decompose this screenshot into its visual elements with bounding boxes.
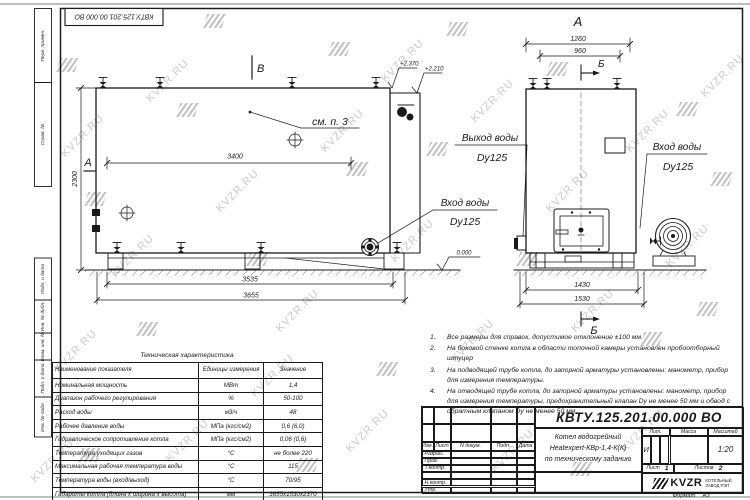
tb-role-prov: Пров.: [422, 458, 451, 465]
section-marker-b: В: [257, 63, 264, 75]
dim-1430: 1430: [574, 282, 590, 289]
sheets-label: Листов: [695, 465, 714, 471]
see-note-label: см. п. 3: [312, 116, 348, 128]
tb-sheets-cell: Листов 2: [674, 464, 744, 473]
valve-icon: [288, 78, 296, 89]
tech-row: Температура воды (вход/выход)°С70/95: [53, 474, 323, 488]
note-number: 2.: [430, 344, 447, 364]
inlet-label-line1: Вход воды: [653, 142, 702, 153]
tech-cell-name: Максимальная рабочая температура воды: [53, 460, 199, 474]
outlet-label-line1: Выход воды: [462, 133, 519, 144]
product-name-line2: Heatexpert-КВр-1,4-К(К): [550, 444, 627, 455]
tb-scale-label: Масштаб: [708, 428, 744, 436]
tech-cell-name: Температура уходящих газов: [53, 446, 199, 460]
product-name-line1: Котел водогрейный: [555, 433, 622, 444]
margin-label: Инв. № подл.: [40, 402, 46, 432]
title-block: Изм. Лист N докум. Подп. Дата Разраб. Пр…: [421, 406, 743, 493]
inlet-label-line1: Вход воды: [441, 198, 490, 209]
boiler-body-side: [96, 88, 390, 253]
water-inlet-flange: [362, 239, 379, 256]
top-stamp: КВТУ.125.201.00.000 ВО: [65, 9, 163, 26]
tech-cell-units: °С: [199, 460, 264, 474]
sheet-label: Лист: [646, 465, 659, 471]
margin-label: Подп. и дата: [40, 363, 46, 393]
tech-cell-value: не более 220: [264, 446, 323, 460]
sheets-value: 2: [719, 465, 723, 472]
tech-cell-value: 0,06 (0,6): [264, 433, 323, 447]
tb-col-docnum: N докум.: [451, 442, 491, 451]
tb-role-empty: [422, 472, 451, 479]
end-view: А 1260 960 Б: [455, 14, 707, 337]
tech-cell-units: МПа (кгс/см2): [199, 419, 264, 433]
margin-label: Справ. №: [40, 124, 46, 146]
elevation-2210: +2.210: [425, 67, 444, 73]
tech-header-row: Наименование показателя Единицы измерени…: [53, 363, 323, 379]
format-value: А3: [702, 493, 709, 499]
tech-cell-name: Рабочее давление воды: [53, 419, 199, 433]
tb-col-podp: Подп.: [491, 442, 517, 451]
note-text: На подводящей трубе котла, до запорной а…: [447, 366, 738, 386]
section-marker-a: А: [83, 157, 91, 169]
tech-row: Габариты котла (длина х ширина х высота)…: [53, 487, 323, 500]
tech-cell-units: °С: [199, 446, 264, 460]
dim-2300: 2300: [72, 171, 79, 188]
tb-scale-value: 1:20: [708, 436, 744, 464]
tech-cell-name: Габариты котла (длина х ширина х высота): [53, 487, 199, 500]
note-number: 1.: [430, 333, 447, 343]
dim-3655: 3655: [243, 293, 259, 300]
margin-label: Перв. примен.: [40, 30, 46, 62]
format-note: Формат А3: [640, 493, 742, 500]
dim-1260: 1260: [570, 36, 586, 43]
tech-cell-value: 48: [264, 406, 323, 420]
outlet-label-line2: Dy125: [477, 152, 508, 164]
tb-col-data: Дата: [517, 442, 535, 451]
tech-row: Рабочее давление водыМПа (кгс/см2)0,6 (6…: [53, 419, 323, 433]
tech-cell-name: Расход воды: [53, 406, 199, 420]
valve-icon: [177, 243, 185, 254]
margin-column: Перв. примен. Справ. № Подп. и дата Инв.…: [35, 9, 52, 438]
valve-icon: [393, 243, 401, 254]
tech-cell-name: Номинальная мощность: [53, 379, 199, 393]
tech-header-units: Единицы измерения: [199, 363, 264, 379]
product-name-line3: по техническому заданию: [545, 455, 632, 466]
inlet-label-line2: Dy125: [450, 216, 481, 228]
note-item: 1. Все размеры для справок, допустимое о…: [430, 333, 738, 343]
company-name-line2: ЗАВОД РЭП: [705, 483, 729, 488]
tech-table-title: Техническая характеристика: [52, 352, 322, 362]
tech-table: Наименование показателя Единицы измерени…: [52, 362, 323, 500]
elevation-2370: +2.370: [400, 62, 419, 68]
tech-header-name: Наименование показателя: [53, 363, 199, 379]
valve-icon: [613, 79, 621, 90]
dim-3535: 3535: [242, 277, 258, 284]
valve-icon: [529, 79, 537, 90]
tech-row: Максимальная рабочая температура воды°С1…: [53, 460, 323, 474]
tb-role-nkontr: Н.контр.: [422, 479, 451, 486]
tech-cell-units: мм: [199, 487, 264, 500]
blower-fan: [653, 219, 695, 267]
dim-3400: 3400: [227, 154, 243, 161]
valve-icon: [99, 78, 107, 89]
valve-icon: [372, 78, 380, 89]
furnace-door: [554, 209, 609, 252]
dim-1530: 1530: [574, 296, 590, 303]
tb-lit-label: Лит.: [642, 428, 670, 436]
tech-row: Номинальная мощностьМВт1,4: [53, 379, 323, 393]
tech-cell-units: МВт: [199, 379, 264, 393]
tb-lit-value: И: [642, 436, 651, 464]
main-view: 3400 2300 3535 3655 А В: [72, 56, 497, 304]
top-stamp-number: КВТУ.125.201.00.000 ВО: [74, 13, 154, 20]
note-text: Все размеры для справок, допустимое откл…: [447, 333, 738, 343]
margin-label: Инв. № дубл.: [40, 302, 46, 332]
section-marker-b-top: Б: [598, 59, 605, 70]
tech-cell-value: 70/95: [264, 474, 323, 488]
margin-label: Подп. и дата: [40, 264, 46, 294]
tb-sheet-cell: Лист 1: [642, 464, 674, 473]
tech-cell-name: Температура воды (вход/выход): [53, 474, 199, 488]
inspection-opening: [605, 138, 625, 153]
tech-cell-value: 0,6 (6,0): [264, 419, 323, 433]
view-label-a: А: [573, 14, 583, 29]
margin-label: Взам. инв. №: [40, 332, 46, 362]
crosshair-mark: [287, 132, 303, 148]
note-item: 3. На подводящей трубе котла, до запорно…: [430, 366, 738, 386]
tb-col-list: Лист: [434, 442, 451, 451]
inlet-label-line2: Dy125: [663, 161, 694, 173]
tech-characteristics: Техническая характеристика Наименование …: [52, 352, 322, 500]
tech-cell-value: 50-100: [264, 392, 323, 406]
tech-cell-name: Гидравлическое сопротивление котла: [53, 433, 199, 447]
tb-mass-value: [670, 436, 708, 464]
blueprint-page: KVZR.RU KVZR.RU KVZR.RU KVZR.RU KVZR.RU …: [0, 0, 750, 500]
tech-cell-units: %: [199, 392, 264, 406]
kvzr-logo-text: KVZR: [670, 477, 702, 489]
company-name: КОТЕЛЬНЫЙ ЗАВОД РЭП: [705, 478, 731, 488]
tb-company-cell: KVZR КОТЕЛЬНЫЙ ЗАВОД РЭП: [642, 473, 744, 494]
crosshair-mark: [119, 205, 135, 221]
elevation-0000: 0.000: [456, 251, 472, 257]
note-number: 3.: [430, 366, 447, 386]
tech-cell-units: °С: [199, 474, 264, 488]
tech-cell-value: 3655х1530х2370: [264, 487, 323, 500]
tech-cell-name: Диапазон рабочего регулирования: [53, 392, 199, 406]
tech-cell-units: м3/ч: [199, 406, 264, 420]
tech-cell-value: 115: [264, 460, 323, 474]
tech-row: Диапазон рабочего регулирования%50-100: [53, 392, 323, 406]
valve-icon: [113, 243, 121, 254]
sheet-value: 1: [665, 465, 669, 472]
tb-product-name: Котел водогрейный Heatexpert-КВр-1,4-К(К…: [535, 428, 642, 472]
tb-role-tkontr: Т.контр.: [422, 465, 451, 472]
tech-cell-units: МПа (кгс/см2): [199, 433, 264, 447]
tech-cell-value: 1,4: [264, 379, 323, 393]
valve-icon: [257, 243, 265, 254]
tech-row: Температура уходящих газов°Сне более 220: [53, 446, 323, 460]
tech-row: Гидравлическое сопротивление котлаМПа (к…: [53, 433, 323, 447]
note-text: На боковой стенке котла в области топочн…: [447, 344, 738, 364]
tech-header-value: Значение: [264, 363, 323, 379]
tb-doc-number: КВТУ.125.201.00.000 ВО: [535, 407, 744, 428]
tb-role-razrab: Разраб.: [422, 451, 451, 458]
valve-icon: [156, 78, 164, 89]
dim-960: 960: [574, 48, 586, 55]
tb-col-izm: Изм.: [422, 442, 434, 451]
valve-icon: [543, 79, 551, 90]
format-label: Формат: [672, 493, 695, 499]
tb-mass-label: Масса: [670, 428, 708, 436]
tech-row: Расход водым3/ч48: [53, 406, 323, 420]
tb-role-utv: Утв.: [422, 487, 451, 494]
note-item: 2. На боковой стенке котла в области топ…: [430, 344, 738, 364]
kvzr-logo-icon: [652, 478, 670, 489]
